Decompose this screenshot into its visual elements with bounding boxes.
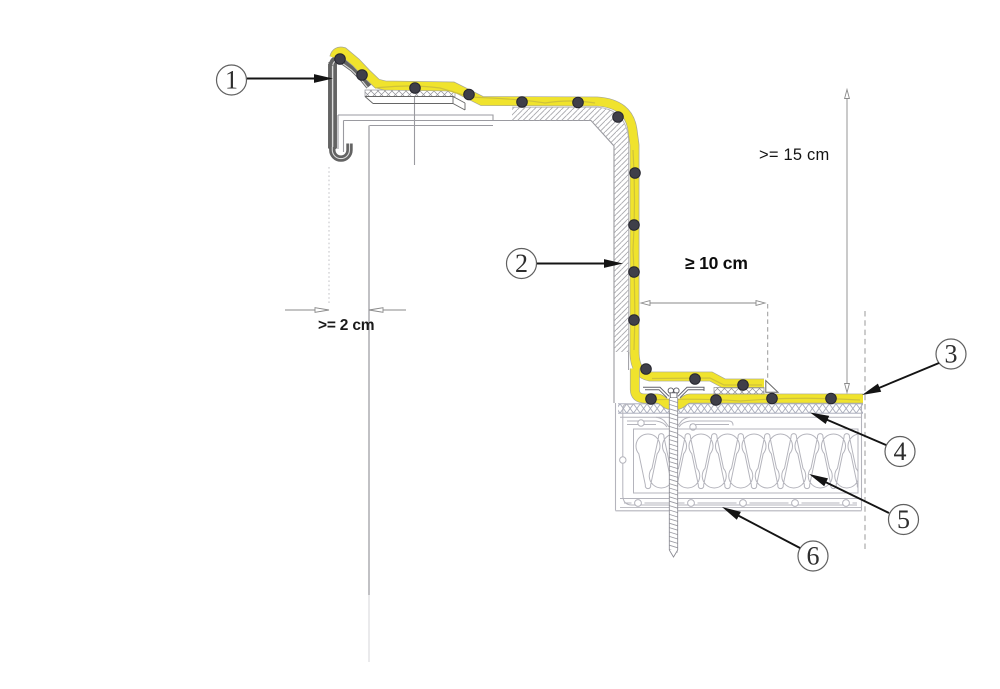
svg-text:≥ 10 cm: ≥ 10 cm [685,253,748,273]
svg-text:1: 1 [225,66,238,95]
svg-text:4: 4 [894,437,907,466]
svg-text:>= 15 cm: >= 15 cm [759,146,829,164]
svg-text:5: 5 [897,505,910,534]
svg-text:>= 2 cm: >= 2 cm [318,317,374,334]
svg-text:2: 2 [515,249,528,278]
svg-text:3: 3 [945,340,958,369]
svg-text:6: 6 [807,542,820,571]
